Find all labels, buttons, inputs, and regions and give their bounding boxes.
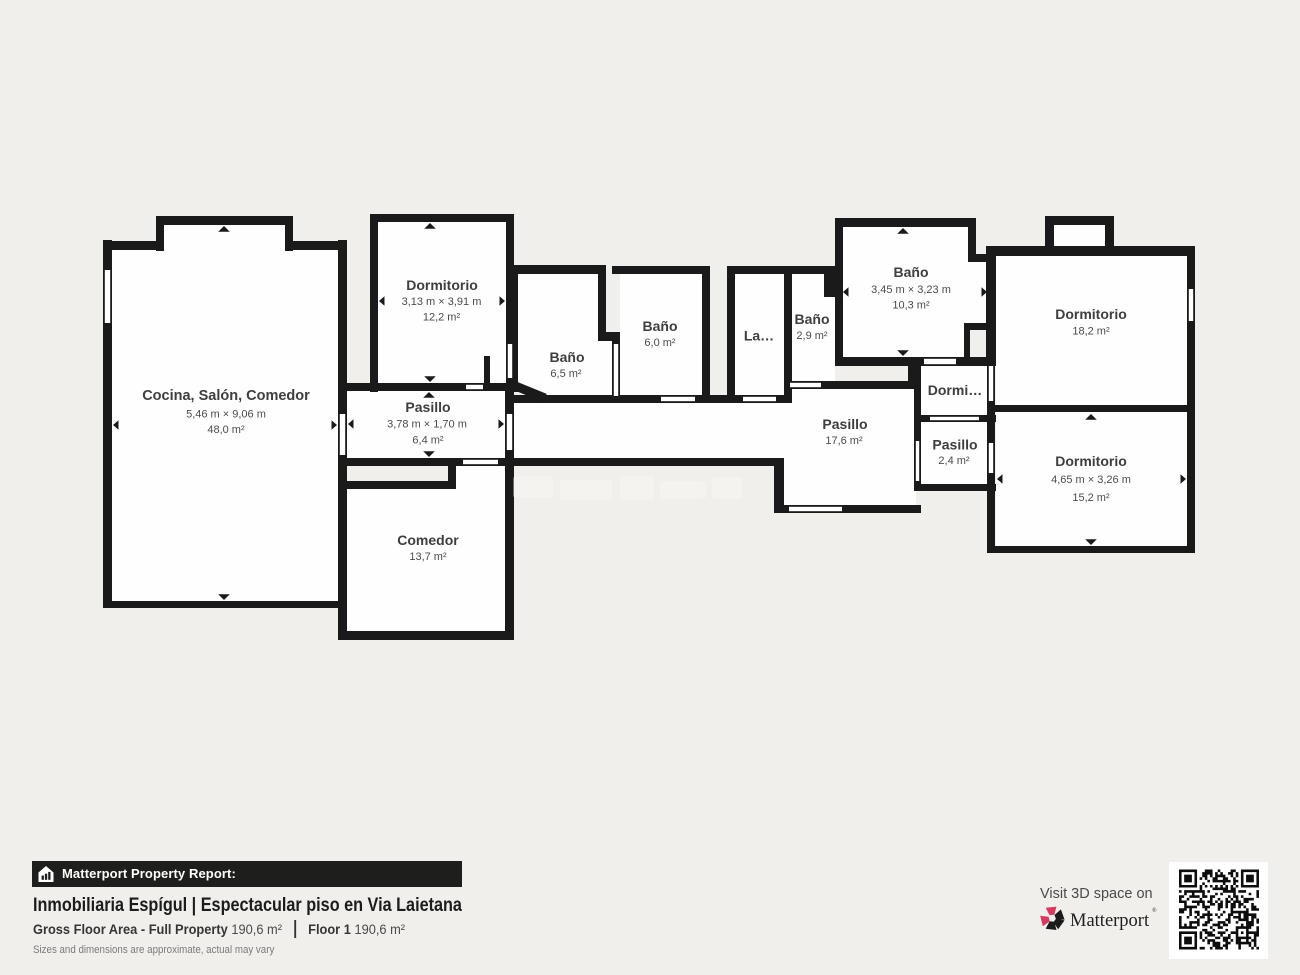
svg-text:15,2 m²: 15,2 m² — [1072, 492, 1110, 504]
svg-text:®: ® — [1152, 907, 1157, 914]
svg-text:3,78 m × 1,70 m: 3,78 m × 1,70 m — [387, 418, 467, 430]
svg-text:17,6 m²: 17,6 m² — [825, 435, 863, 447]
svg-text:4,65 m × 3,26 m: 4,65 m × 3,26 m — [1051, 474, 1131, 486]
svg-text:2,9 m²: 2,9 m² — [796, 330, 828, 342]
svg-text:12,2 m²: 12,2 m² — [423, 311, 461, 323]
svg-text:18,2 m²: 18,2 m² — [1072, 325, 1110, 337]
svg-text:Matterport: Matterport — [1070, 911, 1150, 931]
svg-text:Dormitorio: Dormitorio — [1055, 453, 1127, 469]
svg-text:Comedor: Comedor — [397, 532, 459, 548]
svg-text:48,0 m²: 48,0 m² — [207, 424, 245, 436]
svg-text:6,5 m²: 6,5 m² — [550, 368, 582, 380]
svg-text:3,13 m × 3,91 m: 3,13 m × 3,91 m — [402, 296, 482, 308]
svg-text:Cocina, Salón, Comedor: Cocina, Salón, Comedor — [142, 388, 310, 404]
svg-text:Pasillo: Pasillo — [932, 437, 977, 453]
svg-text:5,46 m × 9,06 m: 5,46 m × 9,06 m — [186, 408, 266, 420]
svg-text:Dormitorio: Dormitorio — [406, 277, 478, 293]
svg-text:3,45 m × 3,23 m: 3,45 m × 3,23 m — [871, 284, 951, 296]
svg-text:Baño: Baño — [795, 311, 830, 327]
svg-text:Baño: Baño — [550, 349, 585, 365]
svg-text:Dormi…: Dormi… — [928, 382, 982, 398]
svg-text:13,7 m²: 13,7 m² — [409, 551, 447, 563]
svg-text:2,4 m²: 2,4 m² — [938, 455, 970, 467]
svg-text:La…: La… — [744, 328, 774, 344]
svg-text:6,4 m²: 6,4 m² — [412, 434, 444, 446]
svg-text:10,3 m²: 10,3 m² — [892, 299, 930, 311]
svg-text:Pasillo: Pasillo — [822, 416, 867, 432]
svg-text:Baño: Baño — [643, 318, 678, 334]
svg-text:Dormitorio: Dormitorio — [1055, 306, 1127, 322]
svg-text:Baño: Baño — [894, 264, 929, 280]
svg-text:6,0 m²: 6,0 m² — [644, 337, 676, 349]
svg-text:Pasillo: Pasillo — [405, 399, 450, 415]
